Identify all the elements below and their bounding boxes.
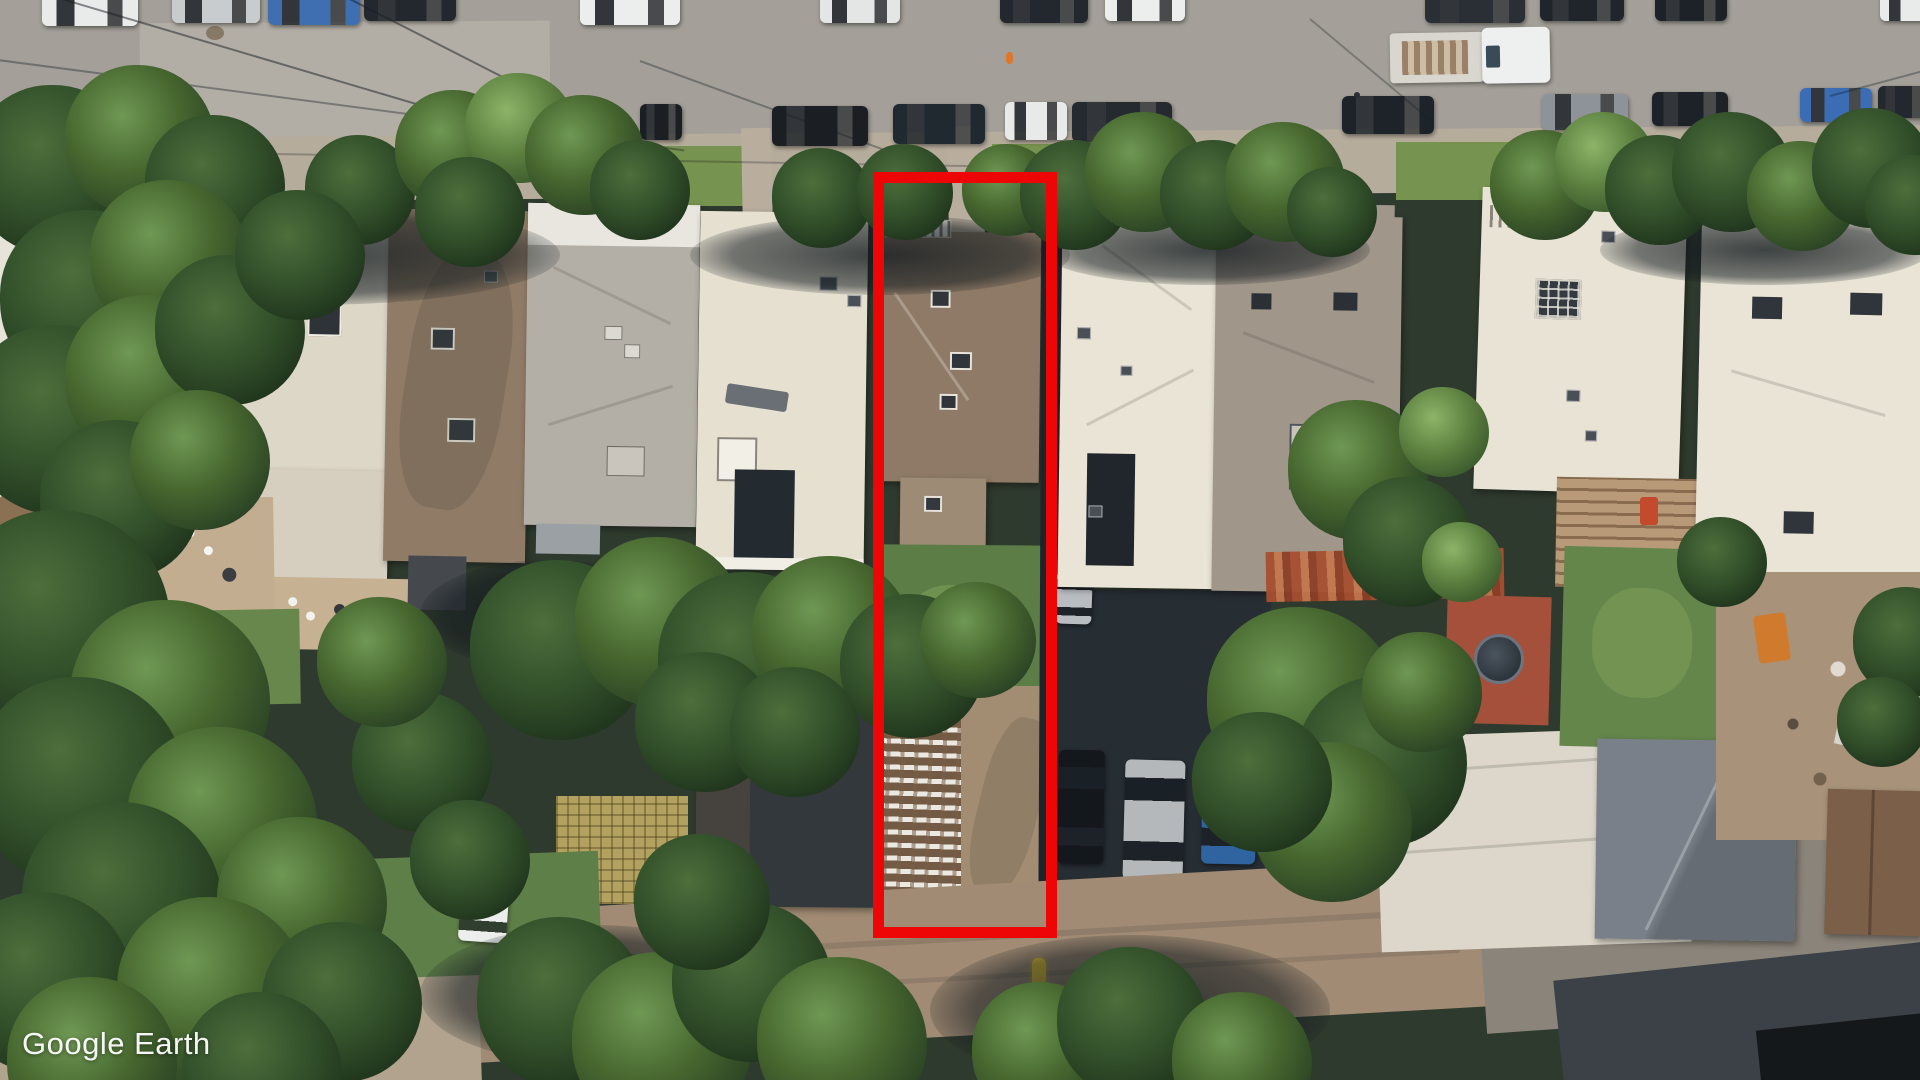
ac-unit	[624, 344, 640, 358]
truck-cargo	[1402, 40, 1469, 75]
parked-car	[1057, 750, 1105, 865]
roof-notch-shadow	[734, 469, 795, 570]
orange-marker	[1640, 497, 1658, 525]
tree	[1287, 167, 1377, 257]
roof-fold	[553, 266, 671, 325]
tree	[130, 390, 270, 530]
parked-car	[580, 0, 680, 25]
google-earth-watermark: Google Earth	[22, 1026, 211, 1062]
ridge-line	[1868, 790, 1875, 935]
ac-unit	[604, 326, 622, 340]
truck-windshield	[1486, 45, 1500, 67]
tree	[1422, 522, 1502, 602]
rear-extension-gray	[536, 523, 601, 554]
tree	[730, 667, 860, 797]
parked-car	[1880, 0, 1920, 21]
roof-fold	[548, 385, 673, 426]
deck-chair	[306, 611, 315, 620]
deck-chair	[288, 597, 297, 606]
roof-vent	[1585, 430, 1597, 441]
ac-cluster	[606, 446, 644, 477]
tree	[590, 140, 690, 240]
parked-car	[172, 0, 260, 23]
deck-chair	[204, 546, 213, 555]
traffic-cone	[1006, 52, 1013, 64]
roof-vent	[1120, 366, 1132, 376]
deck-table	[222, 568, 236, 582]
roof-fold	[1243, 331, 1375, 384]
parked-car	[1655, 0, 1727, 21]
skylight-grid	[1535, 279, 1582, 320]
parked-car	[1425, 0, 1525, 23]
parked-car	[1105, 0, 1185, 21]
orange-equipment	[1753, 612, 1791, 664]
parked-car	[1122, 759, 1185, 881]
roof-vent	[847, 295, 861, 307]
brown-shed-roof	[1824, 789, 1920, 936]
skylight	[1752, 297, 1782, 320]
tree	[415, 157, 525, 267]
chimney-vent-pipe	[725, 383, 789, 412]
tree	[1677, 517, 1767, 607]
tree	[410, 800, 530, 920]
tree	[1192, 712, 1332, 852]
hot-tub	[1473, 633, 1524, 684]
tree	[235, 190, 365, 320]
satellite-map-canvas[interactable]: Google Earth	[0, 0, 1920, 1080]
parked-car	[820, 0, 900, 23]
parked-car	[364, 0, 456, 21]
roof-vent	[1566, 390, 1580, 402]
property-outline	[873, 172, 1057, 938]
skylight	[1251, 293, 1271, 309]
parked-car	[1540, 0, 1624, 21]
tree	[634, 834, 770, 970]
parked-car	[1342, 96, 1434, 134]
tree	[1399, 387, 1489, 477]
roof-vent	[1088, 505, 1102, 517]
parked-car	[268, 0, 360, 25]
manhole-cover	[206, 26, 224, 40]
lawn-light-patch	[1591, 587, 1694, 700]
roof-vent	[1077, 327, 1091, 339]
parked-car	[1005, 102, 1067, 140]
roof-fold	[1086, 369, 1194, 427]
tree	[1362, 632, 1482, 752]
parked-car	[893, 104, 985, 144]
parked-car	[42, 0, 138, 26]
tree	[1837, 677, 1920, 767]
skylight	[1850, 293, 1882, 316]
skylight	[1783, 511, 1813, 534]
roof-fold	[1731, 370, 1885, 418]
tree	[317, 597, 447, 727]
utility-pole	[1354, 92, 1360, 98]
flatbed-truck	[1390, 27, 1551, 88]
parked-car	[1000, 0, 1088, 23]
skylight	[1333, 292, 1357, 310]
parked-car	[640, 104, 682, 140]
